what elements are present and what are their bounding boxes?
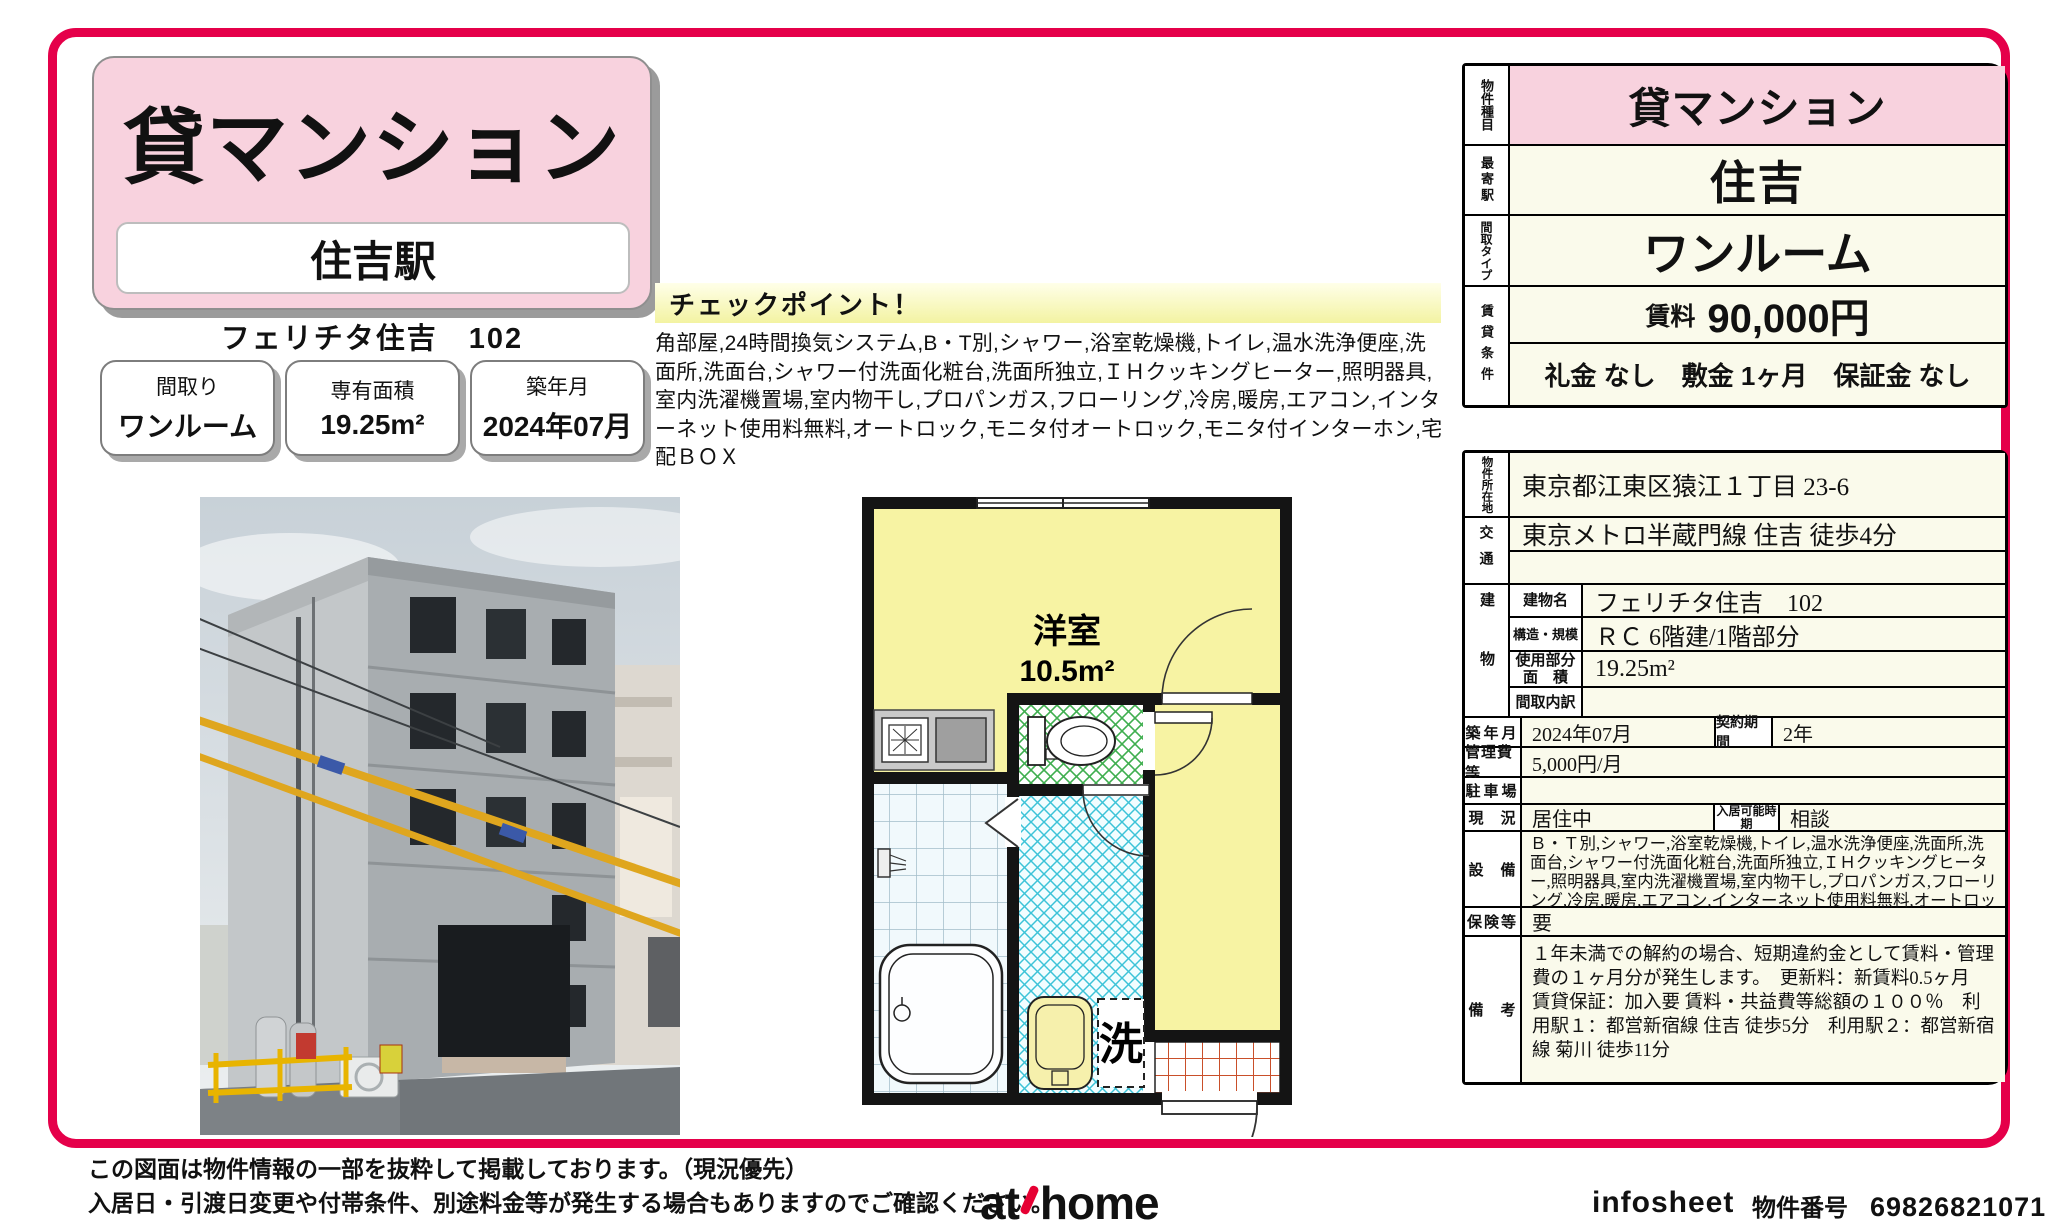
athome-logo: at home xyxy=(980,1176,1159,1222)
spec-value: 19.25m² xyxy=(320,409,424,441)
checkpoint-body: 角部屋,24時間換気システム,B・T別,シャワー,浴室乾燥機,トイレ,温水洗浄便… xyxy=(655,330,1447,475)
row-label-access: 交通 xyxy=(1465,518,1510,585)
fees-value: 礼金 なし 敷金 1ヶ月 保証金 なし xyxy=(1510,344,2005,405)
parking-label: 駐車場 xyxy=(1465,778,1522,805)
nearest-station-value: 住吉 xyxy=(1510,146,2005,216)
row-label-rent-conditions: 賃貸条件 xyxy=(1465,287,1510,405)
row-label-address: 物件所在地 xyxy=(1465,453,1510,518)
row-label-property-type: 物件種目 xyxy=(1465,66,1510,146)
disclaimer-line1: この図面は物件情報の一部を抜粋して掲載しております。（現況優先） xyxy=(88,1150,808,1184)
row-label-nearest-station: 最寄駅 xyxy=(1465,146,1510,216)
rent-amount: 90,000円 xyxy=(1707,286,1869,344)
built-value: 2024年07月 xyxy=(1522,718,1716,748)
building-photo xyxy=(200,497,680,1135)
spec-box-built: 築年月 2024年07月 xyxy=(470,360,645,456)
mgmt-fee-label: 管理費等 xyxy=(1465,748,1522,778)
address-value: 東京都江東区猿江１丁目 23-6 xyxy=(1510,453,2005,518)
property-type-title: 貸マンション xyxy=(94,80,650,200)
property-number-label: 物件番号 xyxy=(1752,1188,1848,1222)
building-title: フェリチタ住吉 102 xyxy=(92,318,652,354)
laundry-space-label: 洗 xyxy=(1099,1020,1143,1069)
layout-type-value: ワンルーム xyxy=(1510,216,2005,287)
access-value: 東京メトロ半蔵門線 住吉 徒歩4分 xyxy=(1510,518,2005,552)
move-in-value: 相談 xyxy=(1780,805,2005,832)
main-room-size: 10.5m² xyxy=(1019,655,1114,688)
spec-label: 間取り xyxy=(156,371,219,401)
status-value: 居住中 xyxy=(1522,805,1715,832)
detail-table: 物件所在地 交通 建物 東京都江東区猿江１丁目 23-6 東京メトロ半蔵門線 住… xyxy=(1462,450,2008,1085)
notes-label: 備 考 xyxy=(1465,937,1522,1082)
rent-label: 賃料 xyxy=(1645,297,1695,333)
main-room-label: 洋室 xyxy=(1033,612,1101,651)
building-name-value: フェリチタ住吉 102 xyxy=(1583,585,2005,618)
spec-value: ワンルーム xyxy=(118,405,257,445)
summary-table: 物件種目 最寄駅 間取タイプ 賃貸条件 貸マンション 住吉 ワンルーム 賃料 9… xyxy=(1462,63,2008,408)
contract-value: 2年 xyxy=(1773,718,2005,748)
structure-label: 構造・規模 xyxy=(1510,618,1583,652)
station-name: 住吉駅 xyxy=(310,228,436,289)
equipment-value: Ｂ・Ｔ別,シャワー,浴室乾燥機,トイレ,温水洗浄便座,洗面所,洗面台,シャワー付… xyxy=(1522,832,2005,908)
building-name-label: 建物名 xyxy=(1510,585,1583,618)
infosheet-brand: infosheet xyxy=(1592,1186,1734,1220)
parking-value xyxy=(1522,778,2005,805)
spec-label: 専有面積 xyxy=(331,375,415,405)
access-value-2 xyxy=(1510,552,2005,585)
layout-detail-value xyxy=(1583,688,2005,718)
spec-value: 2024年07月 xyxy=(483,405,632,445)
property-number-value: 69826821071 xyxy=(1870,1192,2046,1222)
station-box: 住吉駅 xyxy=(116,222,630,294)
rent-value: 賃料 90,000円 xyxy=(1510,287,2005,344)
logo-at-text: at xyxy=(980,1176,1019,1222)
contract-label: 契約期間 xyxy=(1716,718,1773,748)
disclaimer-line2: 入居日・引渡日変更や付帯条件、別途料金等が発生する場合もありますのでご確認くださ… xyxy=(88,1184,1054,1218)
row-label-layout-type: 間取タイプ xyxy=(1465,216,1510,287)
spec-box-area: 専有面積 19.25m² xyxy=(285,360,460,456)
layout-detail-label: 間取内訳 xyxy=(1510,688,1583,718)
flyer-page: 貸マンション 住吉駅 フェリチタ住吉 102 間取り ワンルーム 専有面積 19… xyxy=(0,0,2056,1222)
notes-value: １年未満での解約の場合、短期違約金として賃料・管理費の１ヶ月分が発生します。 更… xyxy=(1522,937,2005,1082)
move-in-label: 入居可能時期 xyxy=(1715,805,1780,832)
spec-label: 築年月 xyxy=(526,371,589,401)
property-type-value: 貸マンション xyxy=(1510,66,2005,146)
mgmt-fee-value: 5,000円/月 xyxy=(1522,748,2005,778)
floor-plan: 洗 洋室 10.5m² xyxy=(862,497,1292,1137)
spec-box-layout: 間取り ワンルーム xyxy=(100,360,275,456)
logo-home-text: home xyxy=(1040,1176,1159,1222)
insurance-value: 要 xyxy=(1522,908,2005,937)
property-type-banner: 貸マンション 住吉駅 xyxy=(92,56,652,310)
logo-tick-icon xyxy=(1019,1184,1039,1215)
insurance-label: 保険等 xyxy=(1465,908,1522,937)
row-label-building: 建物 xyxy=(1465,585,1510,718)
checkpoint-header: チェックポイント！ xyxy=(655,283,1441,323)
checkpoint-title: チェックポイント！ xyxy=(669,285,921,322)
structure-value: ＲＣ 6階建/1階部分 xyxy=(1583,618,2005,652)
status-label: 現 況 xyxy=(1465,805,1522,832)
area-label: 使用部分 面 積 xyxy=(1510,652,1583,688)
property-number: 物件番号 69826821071 xyxy=(1750,1188,2052,1222)
area-value: 19.25m² xyxy=(1583,652,2005,688)
equipment-label: 設 備 xyxy=(1465,832,1522,908)
